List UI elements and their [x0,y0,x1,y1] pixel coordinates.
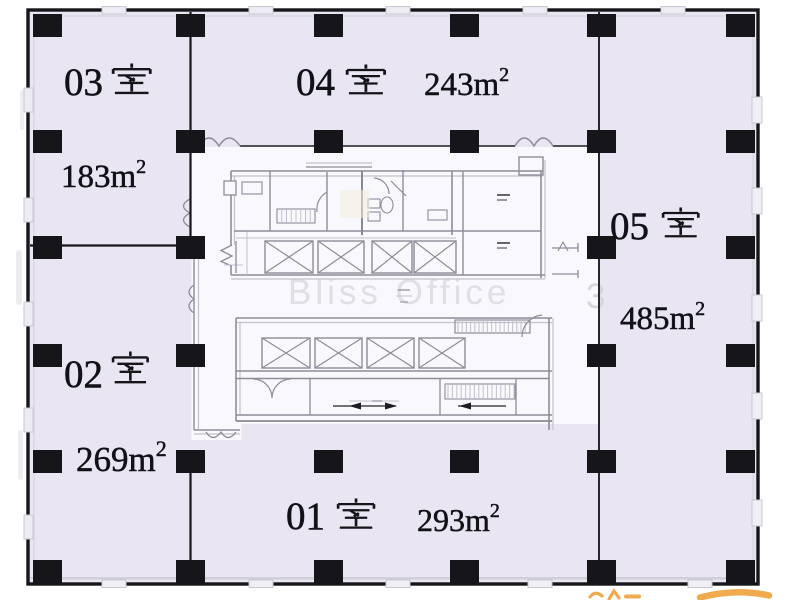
svg-text:485m2: 485m2 [620,298,705,337]
svg-text:183m2: 183m2 [61,156,146,195]
svg-text:243m2: 243m2 [424,64,509,103]
svg-text:02: 02 [64,353,103,396]
svg-text:04: 04 [296,61,335,104]
svg-text:3: 3 [586,277,605,316]
svg-text:01: 01 [286,495,325,538]
svg-text:05: 05 [610,205,649,248]
svg-text:03: 03 [64,61,103,104]
svg-text:293m2: 293m2 [417,500,500,538]
svg-text:269m2: 269m2 [76,436,167,479]
